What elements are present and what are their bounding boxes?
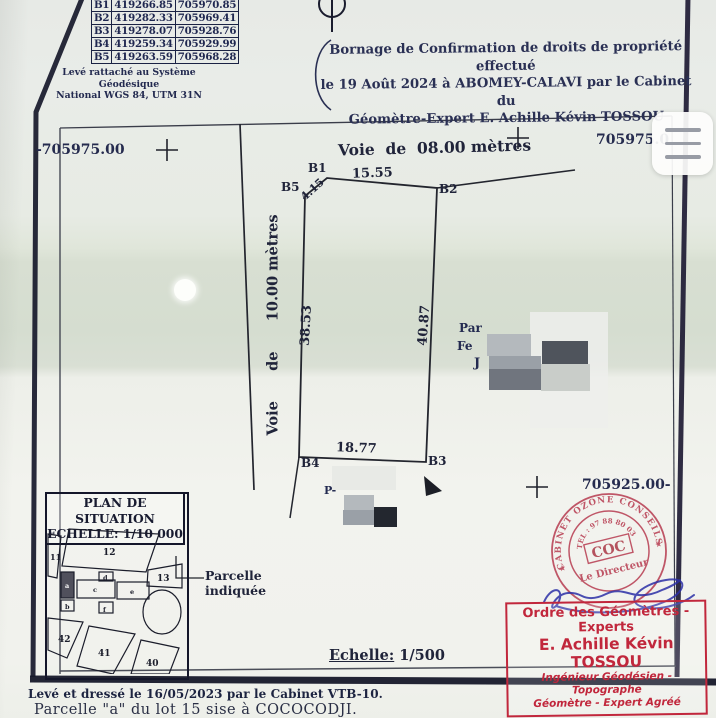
footer-parcel-note: Parcelle "a" du lot 15 sise à COCOCODJI.	[34, 702, 357, 718]
sublot-label: d	[103, 574, 108, 582]
scanned-survey-document: B1419266.85705970.85 B2419282.33705969.4…	[0, 0, 716, 718]
redaction-mosaic	[332, 466, 396, 490]
menu-icon	[665, 128, 701, 131]
sublot-label: e	[130, 588, 134, 596]
lot-label: 41	[98, 649, 111, 659]
redacted-text-fragment: J	[474, 356, 480, 371]
menu-icon	[665, 155, 701, 158]
redaction-mosaic	[343, 510, 374, 525]
geodesic-note: Levé rattaché au Système Géodésique Nati…	[38, 67, 220, 102]
lot-label: 42	[58, 635, 71, 645]
situation-plan-title: PLAN DE SITUATION	[47, 495, 183, 526]
redaction-mosaic	[542, 341, 588, 364]
table-row: B5419263.59705968.28	[92, 51, 239, 64]
flash-glare-dot	[174, 279, 196, 301]
corner-label-b1: B1	[308, 161, 327, 175]
dimension-right: 40.87	[415, 305, 433, 347]
sublot-label: c	[93, 586, 97, 594]
grid-label-left: -705975.00	[36, 142, 125, 158]
lot-label: 12	[103, 548, 116, 558]
dimension-bottom: 18.77	[336, 440, 377, 456]
dimension-top: 15.55	[352, 165, 393, 181]
corner-label-b5: B5	[281, 180, 300, 194]
table-row: B4419259.34705929.99	[92, 38, 239, 51]
situation-minimap: 11 12 13 40 41 42 a b c d e f	[47, 528, 183, 674]
table-row: B2419282.33705969.41	[92, 12, 239, 25]
redacted-text-fragment: Par	[459, 321, 482, 335]
lot-label: 13	[157, 574, 170, 584]
redaction-mosaic	[541, 364, 590, 391]
parcel-callout: Parcelle indiquée	[205, 568, 266, 598]
redaction-mosaic	[489, 356, 541, 369]
sublot-label: b	[65, 603, 70, 611]
drawing-scale: Echelle: 1/500	[329, 647, 445, 664]
redacted-text-fragment: Fe	[457, 339, 473, 353]
footer-survey-note: Levé et dressé le 16/05/2023 par le Cabi…	[28, 687, 383, 701]
corner-label-b4: B4	[301, 456, 320, 470]
road-label-left: Voie de 10.00 mètres	[265, 226, 282, 436]
table-row: B3419278.07705928.76	[92, 25, 239, 38]
stamp-box-title1: Ingénieur Géodésien - Topographe	[508, 670, 705, 699]
corner-label-b2: B2	[439, 182, 458, 196]
stamp-box-order: Ordre des Géomètres - Experts	[507, 604, 704, 637]
north-arrow-icon	[319, 0, 345, 32]
title-line1: Bornage de Confirmation de droits de pro…	[320, 38, 692, 77]
lot-label: 40	[146, 659, 159, 669]
stamp-box-name: E. Achille Kévin TOSSOU	[508, 634, 705, 673]
stamp-box-title2: Géomètre - Expert Agréé	[509, 696, 706, 712]
title-line2: le 19 Août 2024 à ABOMEY-CALAVI par le C…	[320, 73, 692, 112]
corner-label-b3: B3	[428, 454, 447, 468]
menu-button[interactable]	[652, 112, 713, 175]
table-row: B1419266.85705970.85	[92, 0, 239, 12]
coordinates-table: B1419266.85705970.85 B2419282.33705969.4…	[91, 0, 239, 64]
redaction-mosaic	[374, 507, 397, 527]
document-title: Bornage de Confirmation de droits de pro…	[320, 38, 693, 129]
lot-label: 11	[50, 552, 61, 562]
redaction-mosaic	[487, 334, 531, 356]
dimension-left: 38.53	[298, 305, 315, 346]
menu-icon	[665, 142, 701, 145]
surveyor-stamp-box: Ordre des Géomètres - Experts E. Achille…	[505, 600, 708, 718]
